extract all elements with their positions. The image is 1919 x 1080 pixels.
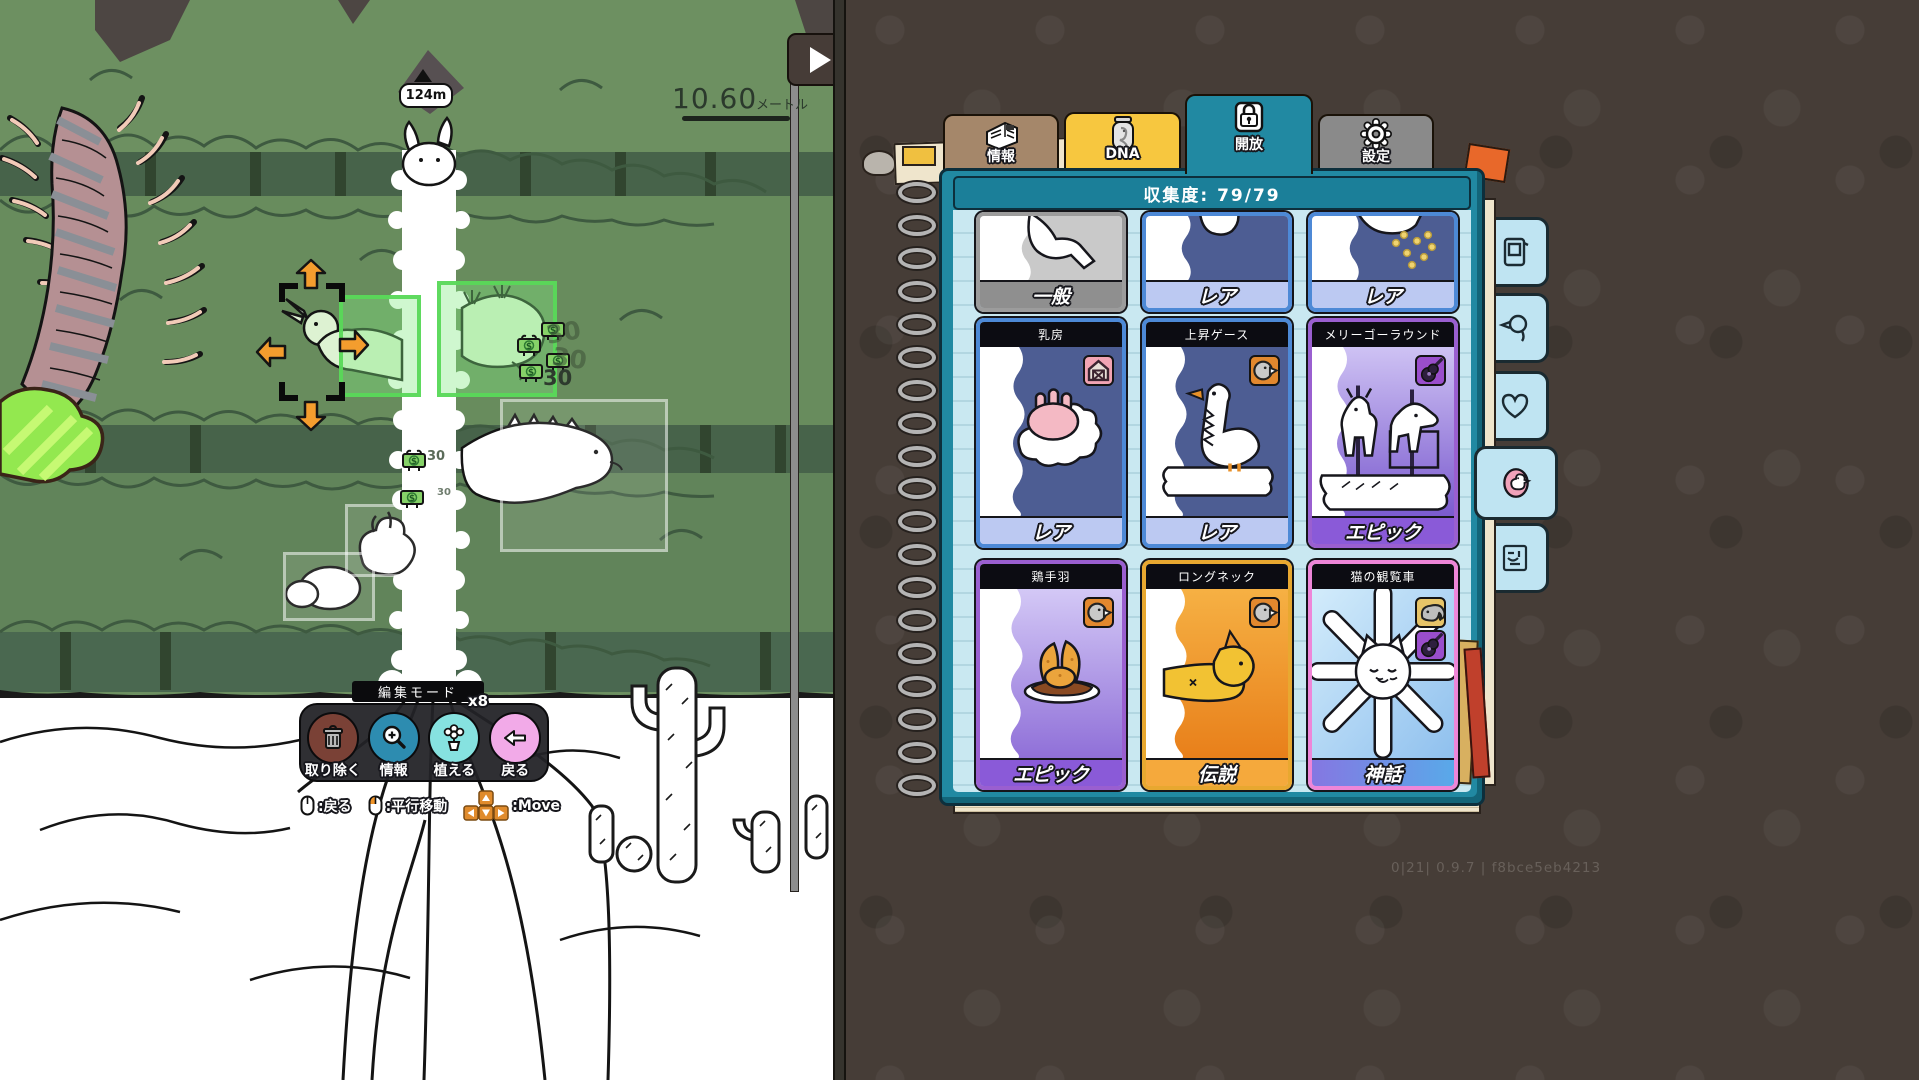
info-label: 情報 [380, 760, 408, 780]
card-device-icon [1498, 235, 1532, 269]
rarity-label: 一般 [980, 280, 1122, 308]
placement-ghost-box [283, 552, 375, 621]
plant-button[interactable]: 植える [425, 712, 483, 780]
back-label: 戻る [501, 760, 529, 780]
rarity-label: 神話 [1312, 758, 1454, 786]
move-right-arrow[interactable] [336, 327, 372, 363]
play-button[interactable] [787, 33, 833, 86]
duck-icon [1498, 311, 1532, 345]
svg-text:$: $ [409, 494, 415, 504]
remove-button[interactable]: 取り除く [304, 712, 362, 780]
height-marker: 124m [399, 83, 453, 108]
guitar-icon [1415, 355, 1446, 386]
control-hints: :戻る :平行移動 :Move [300, 790, 560, 821]
yellow-page-tab [902, 146, 936, 166]
barn-icon [1083, 355, 1114, 386]
arrow-keys-icon [463, 790, 509, 821]
cost-label: 30 [543, 366, 572, 390]
spiral-binding [898, 182, 934, 796]
hint-pan: :平行移動 [368, 795, 448, 816]
move-left-arrow[interactable] [253, 334, 289, 370]
height-ruler-line [682, 116, 790, 121]
hint-back: :戻る [300, 795, 352, 816]
card-chicken-wings[interactable]: 鶏手羽 エピック [976, 560, 1126, 790]
card-partial[interactable]: レア [1142, 212, 1292, 312]
svg-text:$: $ [528, 368, 534, 378]
svg-text:$: $ [526, 342, 532, 352]
collection-book-panel: 情報 DNA 開放 設定 収集度: 79/79 一般 [842, 0, 1919, 1080]
goose-icon [1249, 597, 1280, 628]
heart-icon [1498, 389, 1532, 423]
height-value: 10.60 [672, 82, 757, 115]
arrow-left-icon [500, 723, 530, 753]
height-unit: メートル [756, 94, 808, 113]
card-title: メリーゴーラウンド [1312, 322, 1454, 347]
svg-text:$: $ [411, 457, 417, 467]
side-tab-eggs-active[interactable] [1474, 446, 1558, 520]
tab-info[interactable]: 情報 [943, 114, 1059, 174]
card-partial[interactable]: 一般 [976, 212, 1126, 312]
edit-mode-title: 編集モード [352, 681, 484, 702]
move-up-arrow[interactable] [293, 256, 329, 292]
mouse-left-click-icon [368, 795, 383, 816]
card-partial[interactable]: レア [1308, 212, 1458, 312]
move-down-arrow[interactable] [293, 398, 329, 434]
stamp-icon [1498, 541, 1532, 575]
magnifier-plus-icon [379, 723, 409, 753]
cost-label: 30 [437, 487, 451, 498]
rarity-label: レア [1312, 280, 1454, 308]
money-badge-icon[interactable]: $ [397, 484, 427, 511]
remove-label: 取り除く [305, 760, 361, 780]
game-view: 10.60 メートル 124m $ $ $ $ $ $ 30 30 30 30 … [0, 0, 833, 1080]
goose-icon [1083, 597, 1114, 628]
tab-dna[interactable]: DNA [1064, 112, 1181, 174]
card-title: 上昇ゲース [1146, 322, 1288, 347]
plant-count: x8 [468, 692, 488, 710]
peeking-creature [862, 150, 896, 176]
card-cat-ferris-wheel[interactable]: 猫の観覧車 神話 [1308, 560, 1458, 790]
placement-ghost-box [500, 399, 668, 552]
card-title: 猫の観覧車 [1312, 564, 1454, 589]
play-icon [810, 47, 831, 73]
card-udder[interactable]: 乳房 レア [976, 318, 1126, 548]
guitar-icon [1415, 630, 1446, 661]
card-merry-go-round[interactable]: メリーゴーラウンド エピック [1308, 318, 1458, 548]
card-title: 鶏手羽 [980, 564, 1122, 589]
height-marker-arrow-icon [414, 69, 432, 82]
card-title: 乳房 [980, 322, 1122, 347]
pane-divider [833, 0, 846, 1080]
version-text: 0|21| 0.9.7 | f8bce5eb4213 [1391, 860, 1601, 876]
rarity-label: 伝説 [1146, 758, 1288, 786]
rarity-label: レア [980, 516, 1122, 544]
back-button[interactable]: 戻る [486, 712, 544, 780]
rarity-label: エピック [1312, 516, 1454, 544]
trash-icon [318, 723, 348, 753]
goose-icon [1249, 355, 1280, 386]
cost-label: 30 [427, 449, 445, 464]
app-window: 10.60 メートル 124m $ $ $ $ $ $ 30 30 30 30 … [0, 0, 1919, 1080]
money-badge-icon[interactable]: $ [399, 447, 429, 474]
mouse-icon [300, 795, 315, 816]
rarity-label: レア [1146, 516, 1288, 544]
collection-progress-header: 収集度: 79/79 [953, 176, 1471, 210]
hint-move: :Move [463, 790, 560, 821]
info-button[interactable]: 情報 [365, 712, 423, 780]
money-badge-icon[interactable]: $ [516, 358, 546, 385]
rarity-label: エピック [980, 758, 1122, 786]
tab-unlock-active[interactable]: 開放 [1185, 94, 1313, 174]
elephant-icon [1415, 597, 1446, 628]
card-long-neck[interactable]: ロングネック 伝説 [1142, 560, 1292, 790]
rarity-label: レア [1146, 280, 1288, 308]
egg-goose-icon [1498, 465, 1534, 501]
flower-pot-icon [439, 723, 469, 753]
plant-label: 植える [434, 760, 476, 780]
tab-settings[interactable]: 設定 [1318, 114, 1434, 174]
card-rising-goose[interactable]: 上昇ゲース レア [1142, 318, 1292, 548]
measuring-pole [790, 80, 799, 892]
edit-mode-panel: 取り除く 情報 植える 戻る [299, 703, 549, 782]
card-title: ロングネック [1146, 564, 1288, 589]
selection-bracket [283, 287, 341, 397]
